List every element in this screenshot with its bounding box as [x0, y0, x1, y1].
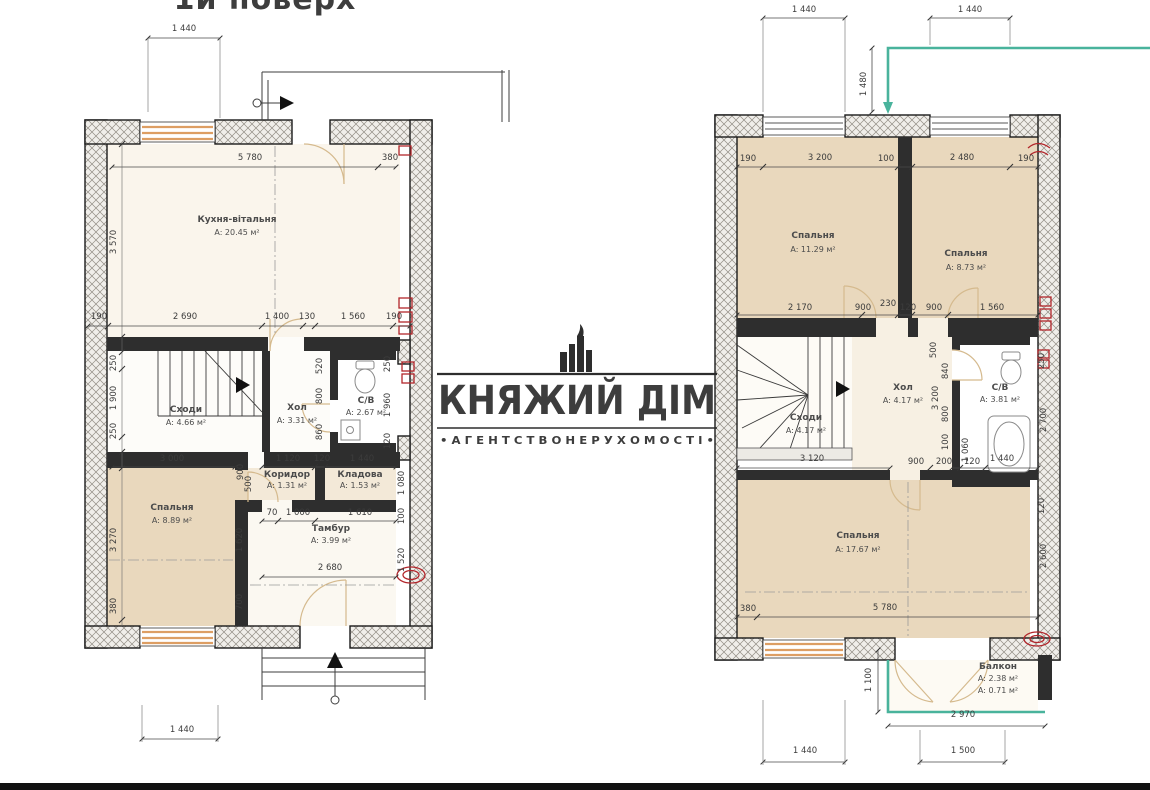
room-label: Сходи: [170, 405, 202, 415]
dim-label: 380: [109, 598, 119, 614]
room-label: Хол: [893, 383, 913, 393]
dim-label: 2 480: [950, 153, 974, 163]
dim-label: 1 000: [286, 508, 310, 518]
floor1-window-bottom: [140, 628, 215, 646]
dim-label: 70: [267, 508, 278, 518]
dim-label: 520: [315, 358, 325, 374]
room-area: A: 11.29 м²: [790, 245, 835, 254]
dim-label: 500: [929, 342, 939, 358]
dim-label: 500: [244, 476, 254, 492]
room-label: Спальня: [836, 531, 879, 541]
floor2-window-top-right: [930, 117, 1010, 135]
dim-label: 900: [926, 303, 942, 313]
floor2-window-top-left: [763, 117, 845, 135]
room-label: Сходи: [790, 413, 822, 423]
room-label: Тамбур: [312, 523, 351, 534]
page-title: 1й поверх: [174, 0, 357, 17]
dim-label: 840: [941, 363, 951, 379]
room-area: A: 3.81 м²: [980, 395, 1020, 404]
dim-label: 1 520: [397, 548, 407, 572]
room-label: Коридор: [264, 470, 311, 480]
room-area: A: 4.17 м²: [883, 396, 923, 405]
dim-label: 250: [383, 356, 393, 372]
dim-label: 1 120: [276, 454, 300, 464]
dim-label: 800: [941, 406, 951, 422]
room-label: Кухня-вітальня: [197, 214, 276, 225]
dim-label: 2 690: [173, 312, 197, 322]
dim-label: 1 440: [990, 454, 1014, 464]
room-label: С/В: [992, 383, 1009, 393]
dim-label: 1 100: [864, 668, 874, 692]
dim-label: 2 700: [1039, 408, 1049, 432]
dim-label: 230: [880, 299, 896, 309]
room-area: A: 0.71 м²: [978, 686, 1018, 695]
room-area: A: 4.17 м²: [786, 426, 826, 435]
dim-label: 1 080: [397, 471, 407, 495]
floor1-entry-top: [253, 70, 509, 122]
room-label: Хол: [287, 403, 307, 413]
room-area: A: 1.53 м²: [340, 481, 380, 490]
dim-label: 380: [740, 604, 756, 614]
dim-label: 380: [382, 153, 398, 163]
dim-label: 900: [855, 303, 871, 313]
dim-label: 190: [386, 312, 402, 322]
dim-label: 250: [1037, 353, 1047, 369]
floor1-toilet-icon: [355, 361, 375, 393]
room-label: Спальня: [150, 503, 193, 513]
dim-label: 3 200: [931, 386, 941, 410]
dim-label: 130: [299, 312, 315, 322]
dim-label: 2 680: [318, 563, 342, 573]
dim-label: 100: [397, 508, 407, 524]
dim-label: 250: [109, 355, 119, 371]
room-area: A: 17.67 м²: [835, 545, 880, 554]
dim-label: 1 440: [793, 746, 817, 756]
dim-label: 1 440: [172, 24, 196, 34]
room-label: Кладова: [337, 470, 382, 480]
dim-label: 3 570: [109, 230, 119, 254]
floorplan-canvas: 1й поверх: [0, 0, 1150, 790]
dim-label: 1 620: [235, 528, 245, 552]
agency-logo: КНЯЖИЙ ДІМ • А Г Е Н Т С Т В О Н Е Р У Х…: [437, 324, 717, 447]
dim-label: 860: [315, 424, 325, 440]
room-area: A: 1.31 м²: [267, 481, 307, 490]
dim-label: 3 000: [160, 454, 184, 464]
room-label: С/В: [358, 396, 375, 406]
room-area: A: 8.73 м²: [946, 263, 986, 272]
room-area: A: 2.38 м²: [978, 674, 1018, 683]
dim-label: 900: [908, 457, 924, 467]
dim-label: 2 170: [788, 303, 812, 313]
dim-label: 700: [235, 594, 245, 610]
dim-label: 3 120: [800, 454, 824, 464]
room-area: A: 3.31 м²: [277, 416, 317, 425]
dim-label: 1 480: [859, 72, 869, 96]
dim-label: 3 270: [109, 528, 119, 552]
dim-label: 800: [315, 388, 325, 404]
room-area: A: 4.66 м²: [166, 418, 206, 427]
room-area: A: 2.67 м²: [346, 408, 386, 417]
dim-label: 190: [91, 312, 107, 322]
dim-label: 100: [941, 434, 951, 450]
floor2-window-bottom: [763, 640, 845, 658]
dim-label: 2 600: [1039, 544, 1049, 568]
dim-label: 250: [109, 423, 119, 439]
dim-label: 1 560: [980, 303, 1004, 313]
dim-label: 190: [1018, 154, 1034, 164]
room-area: A: 20.45 м²: [214, 228, 259, 237]
logo-building-icon: [560, 324, 592, 372]
dim-label: 1 440: [170, 725, 194, 735]
room-label: Балкон: [979, 662, 1017, 672]
dim-label: 3 200: [808, 153, 832, 163]
dim-label: 1 900: [109, 386, 119, 410]
floorplan-page: 1й поверх: [0, 0, 1150, 790]
dim-label: 5 780: [238, 153, 262, 163]
room-label: Спальня: [944, 249, 987, 259]
floor2-toilet-icon: [1001, 352, 1021, 384]
dim-label: 120: [383, 433, 393, 449]
dim-label: 1 560: [341, 312, 365, 322]
floor1-entry-steps: [262, 648, 425, 704]
logo-tagline: • А Г Е Н Т С Т В О Н Е Р У Х О М О С Т …: [440, 434, 714, 447]
floor1-window-top: [140, 122, 215, 142]
dim-label: 1 500: [951, 746, 975, 756]
dim-label: 190: [740, 154, 756, 164]
room-area: A: 3.99 м²: [311, 536, 351, 545]
dim-label: 200: [936, 457, 952, 467]
room-area: A: 8.89 м²: [152, 516, 192, 525]
dim-label: 120: [1037, 498, 1047, 514]
dim-label: 1 440: [350, 454, 374, 464]
dim-label: 2 970: [951, 710, 975, 720]
floor1-sink-icon: [341, 420, 360, 440]
dim-label: 120: [900, 303, 916, 313]
dim-label: 1 400: [265, 312, 289, 322]
dim-label: 120: [964, 457, 980, 467]
logo-name: КНЯЖИЙ ДІМ: [438, 376, 716, 424]
dim-label: 1 440: [958, 5, 982, 15]
dim-label: 1 610: [348, 508, 372, 518]
dim-label: 1 440: [792, 5, 816, 15]
floor2-plan: 1 440 1 440 1 480 190 3 200 100 2 480 19…: [715, 5, 1150, 765]
dim-label: 100: [878, 154, 894, 164]
dim-label: 5 780: [873, 603, 897, 613]
bottom-border: [0, 783, 1150, 790]
dim-label: 120: [314, 454, 330, 464]
room-label: Спальня: [791, 231, 834, 241]
